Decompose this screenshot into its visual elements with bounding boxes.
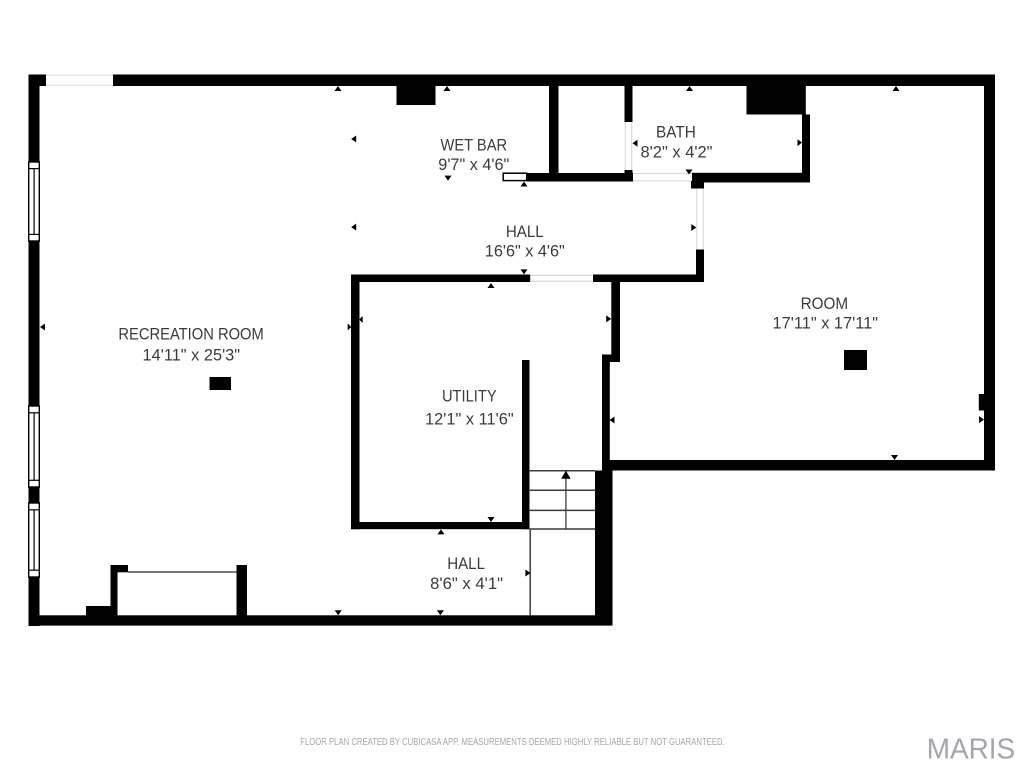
svg-text:16'6" x 4'6": 16'6" x 4'6" <box>485 242 565 261</box>
svg-text:MARIS: MARIS <box>927 733 1016 765</box>
svg-text:9'7" x 4'6": 9'7" x 4'6" <box>438 155 509 174</box>
svg-text:14'11" x 25'3": 14'11" x 25'3" <box>143 345 241 364</box>
svg-text:FLOOR PLAN CREATED BY CUBICASA: FLOOR PLAN CREATED BY CUBICASA APP. MEAS… <box>300 737 724 748</box>
svg-text:17'11" x 17'11": 17'11" x 17'11" <box>773 313 879 332</box>
svg-text:8'2" x 4'2": 8'2" x 4'2" <box>641 142 713 161</box>
svg-text:BATH: BATH <box>656 123 696 142</box>
svg-text:HALL: HALL <box>447 554 485 573</box>
svg-text:12'1" x 11'6": 12'1" x 11'6" <box>425 409 514 428</box>
svg-text:WET BAR: WET BAR <box>441 135 508 154</box>
svg-text:UTILITY: UTILITY <box>442 387 497 406</box>
svg-text:HALL: HALL <box>506 222 544 241</box>
svg-text:RECREATION ROOM: RECREATION ROOM <box>118 324 263 343</box>
svg-text:ROOM: ROOM <box>801 294 849 313</box>
svg-text:8'6" x 4'1": 8'6" x 4'1" <box>430 574 503 593</box>
